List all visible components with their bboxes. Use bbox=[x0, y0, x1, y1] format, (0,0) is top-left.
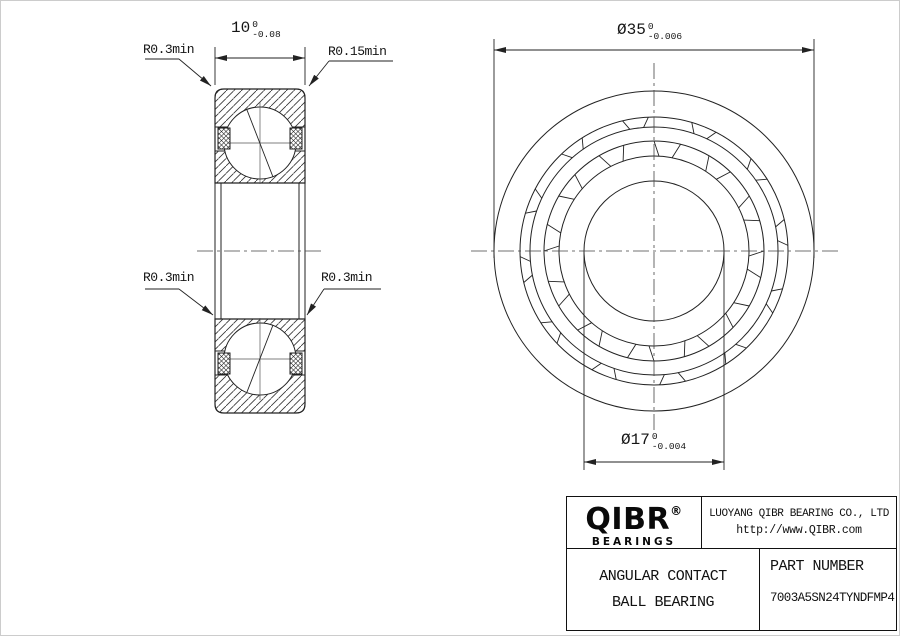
lower-tolerance: -0.08 bbox=[252, 30, 281, 40]
dim-tolerance: 0 -0.006 bbox=[648, 22, 682, 42]
part-number-cell: PART NUMBER 7003A5SN24TYNDFMP4 bbox=[760, 549, 896, 630]
product-name-line2: BALL BEARING bbox=[612, 594, 714, 611]
cage-section-left bbox=[218, 353, 230, 374]
dim-nominal: Ø17 bbox=[621, 432, 650, 449]
cage-section-right bbox=[290, 128, 302, 149]
part-number-value: 7003A5SN24TYNDFMP4 bbox=[770, 591, 896, 605]
registered-mark-icon: ® bbox=[670, 504, 683, 518]
part-number-label: PART NUMBER bbox=[770, 558, 896, 575]
radius-label-mid-right: R0.3min bbox=[321, 270, 372, 285]
width-dimension bbox=[215, 47, 305, 85]
bore-dimension-text: Ø17 0 -0.004 bbox=[621, 432, 686, 452]
section-top-half bbox=[215, 89, 305, 184]
section-bottom-half bbox=[215, 318, 305, 413]
logo-wordmark: QIBR bbox=[585, 502, 670, 537]
product-name-line1: ANGULAR CONTACT bbox=[599, 568, 727, 585]
width-dimension-text: 10 0 -0.08 bbox=[231, 20, 281, 40]
title-block-detail-row: ANGULAR CONTACT BALL BEARING PART NUMBER… bbox=[567, 549, 896, 630]
logo-text: QIBR® bbox=[585, 497, 682, 534]
lower-tolerance: -0.006 bbox=[648, 32, 682, 42]
lower-tolerance: -0.004 bbox=[652, 442, 686, 452]
company-info-cell: LUOYANG QIBR BEARING CO., LTD http://www… bbox=[702, 497, 896, 548]
cross-section-view bbox=[145, 47, 393, 413]
od-dimension-text: Ø35 0 -0.006 bbox=[617, 22, 682, 42]
radius-label-mid-left: R0.3min bbox=[143, 270, 194, 285]
radius-label-top-right: R0.15min bbox=[328, 44, 386, 59]
drawing-sheet: 10 0 -0.08 R0.3min R0.15min R0.3min R0.3… bbox=[0, 0, 900, 636]
dim-nominal: 10 bbox=[231, 20, 250, 37]
front-view bbox=[471, 39, 839, 470]
cage-section-left bbox=[218, 128, 230, 149]
company-website: http://www.QIBR.com bbox=[736, 524, 861, 537]
dim-tolerance: 0 -0.08 bbox=[252, 20, 281, 40]
dim-tolerance: 0 -0.004 bbox=[652, 432, 686, 452]
product-description-cell: ANGULAR CONTACT BALL BEARING bbox=[567, 549, 760, 630]
company-name: LUOYANG QIBR BEARING CO., LTD bbox=[709, 508, 889, 520]
brand-logo: QIBR® BEARINGS bbox=[567, 497, 702, 548]
cage-section-right bbox=[290, 353, 302, 374]
title-block-header-row: QIBR® BEARINGS LUOYANG QIBR BEARING CO.,… bbox=[567, 497, 896, 549]
dim-nominal: Ø35 bbox=[617, 22, 646, 39]
logo-subtext: BEARINGS bbox=[592, 536, 676, 548]
title-block: QIBR® BEARINGS LUOYANG QIBR BEARING CO.,… bbox=[566, 496, 897, 631]
radius-label-top-left: R0.3min bbox=[143, 42, 194, 57]
